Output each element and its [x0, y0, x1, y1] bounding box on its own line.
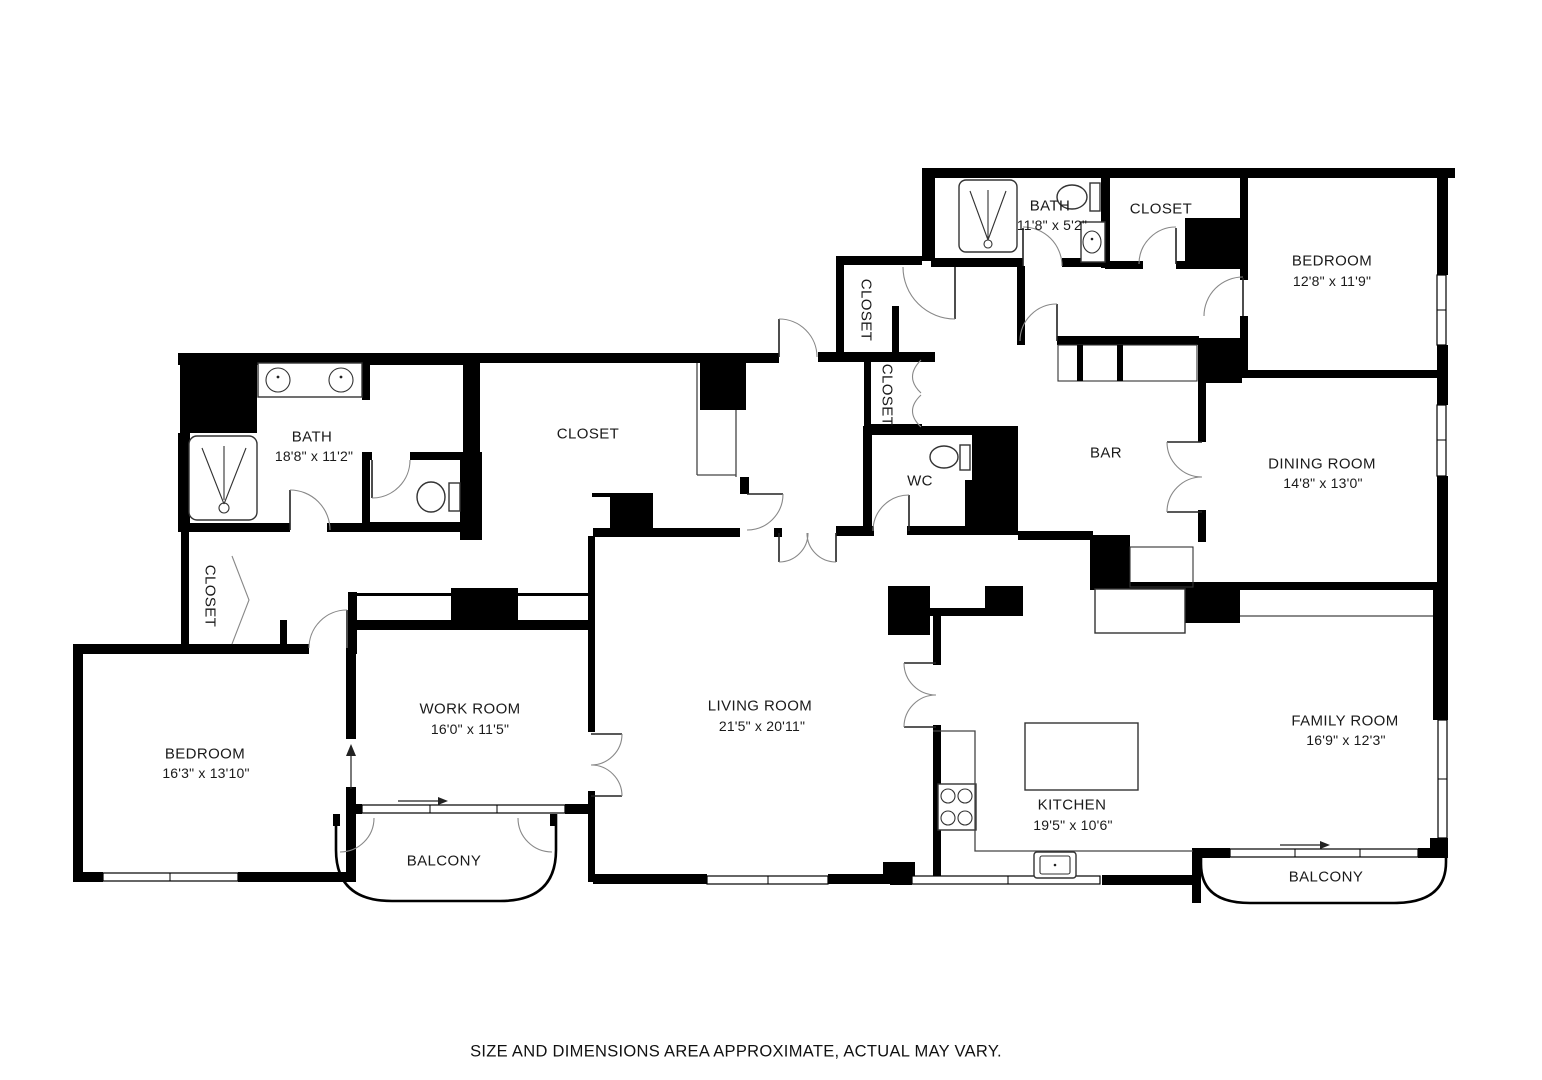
- room-dims-family-room: 16'9" x 12'3": [1306, 732, 1385, 748]
- room-label-closet-center: CLOSET: [557, 426, 619, 443]
- room-label-closet-hall-upper: CLOSET: [858, 279, 875, 341]
- shower-icon-left-bath: [189, 436, 257, 520]
- room-dims-bedroom-top: 12'8" x 11'9": [1293, 273, 1371, 289]
- room-label-family-room: FAMILY ROOM: [1291, 713, 1398, 730]
- kitchen-sink-icon: [1034, 852, 1076, 878]
- slider-arrow-family: [1280, 841, 1330, 849]
- room-label-bath-top: BATH: [1030, 198, 1071, 215]
- room-label-closet-top: CLOSET: [1130, 201, 1192, 218]
- bar-cabinet: [1058, 345, 1197, 381]
- room-dims-bath-left: 18'8" x 11'2": [275, 448, 353, 464]
- room-dims-work-room: 16'0" x 11'5": [431, 721, 509, 737]
- shower-icon-top-bath: [959, 180, 1017, 252]
- balcony-outlines: [336, 814, 1446, 903]
- room-label-kitchen: KITCHEN: [1038, 797, 1107, 814]
- room-label-closet-left: CLOSET: [202, 565, 219, 627]
- room-dims-bedroom-left: 16'3" x 13'10": [162, 765, 249, 781]
- room-label-bar: BAR: [1090, 445, 1122, 462]
- walls: [73, 168, 1455, 903]
- room-dims-living-room: 21'5" x 20'11": [719, 718, 805, 734]
- room-dims-dining-room: 14'8" x 13'0": [1283, 475, 1362, 491]
- room-label-dining-room: DINING ROOM: [1268, 456, 1376, 473]
- slider-arrow-workroom: [398, 797, 448, 805]
- room-dims-bath-top: 11'8" x 5'2": [1017, 217, 1087, 233]
- room-label-balcony-left: BALCONY: [407, 853, 482, 870]
- room-label-wc: WC: [907, 473, 933, 490]
- room-dims-kitchen: 19'5" x 10'6": [1033, 817, 1112, 833]
- bar-counter: [1130, 547, 1193, 587]
- floor-plan-drawing: [0, 0, 1542, 1080]
- disclaimer-text: SIZE AND DIMENSIONS AREA APPROXIMATE, AC…: [470, 1043, 1002, 1062]
- room-label-closet-hall-lower: CLOSET: [879, 364, 896, 426]
- entry-arrow: [346, 744, 356, 789]
- room-label-bath-left: BATH: [292, 429, 333, 446]
- toilet-icon-left-bath: [417, 482, 460, 512]
- toilet-icon-wc: [930, 445, 970, 470]
- room-label-balcony-right: BALCONY: [1289, 869, 1364, 886]
- kitchen-island: [1025, 723, 1138, 790]
- room-label-bedroom-left: BEDROOM: [165, 746, 245, 763]
- room-label-work-room: WORK ROOM: [419, 701, 520, 718]
- floor-plan-page: BATH 18'8" x 11'2" CLOSET CLOSET BEDROOM…: [0, 0, 1542, 1080]
- vanity-double-sink-icon: [258, 363, 362, 397]
- dining-cabinet: [1095, 589, 1185, 633]
- stove-icon: [938, 784, 976, 830]
- room-label-living-room: LIVING ROOM: [708, 698, 812, 715]
- room-label-bedroom-top: BEDROOM: [1292, 253, 1372, 270]
